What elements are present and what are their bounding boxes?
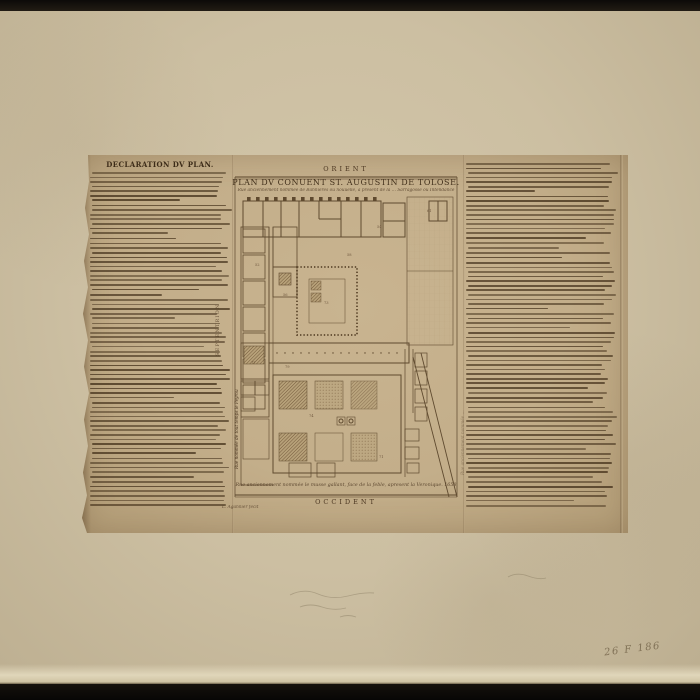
convent-floor-plan: 52 56 58 54 61 73 74 71 77 79 — [229, 167, 463, 523]
print-text-line — [466, 280, 615, 282]
print-text-line — [468, 303, 604, 305]
plan-figure-labels: 52 56 58 54 61 73 74 71 77 79 — [251, 209, 432, 459]
print-text-line — [466, 267, 612, 269]
print-text-line — [468, 411, 613, 413]
print-text-line — [466, 420, 612, 422]
orient-label: ORIENT — [229, 165, 463, 173]
print-text-line — [466, 481, 602, 483]
print-text-line — [468, 458, 610, 460]
plan-figure-label: 74 — [309, 414, 314, 418]
print-text-line — [466, 382, 605, 384]
print-text-line — [90, 365, 223, 367]
print-text-line — [90, 416, 225, 418]
print-text-line — [90, 486, 225, 488]
print-text-line — [90, 279, 222, 281]
print-text-line — [466, 364, 602, 366]
print-text-line — [466, 350, 607, 352]
plan-figure-label: 73 — [324, 301, 329, 305]
print-text-line — [466, 181, 612, 183]
print-text-line — [466, 397, 603, 399]
print-text-line — [468, 172, 618, 174]
print-text-line — [466, 177, 612, 179]
print-text-line — [466, 341, 611, 343]
print-text-line — [468, 332, 615, 334]
print-text-line — [466, 237, 586, 239]
print-text-line — [466, 232, 611, 234]
legend-text-block-right — [466, 163, 616, 507]
print-text-line — [466, 214, 614, 216]
photograph-of-mounted-engraving: DECLARATION DV PLAN. SEPTENTRION ORIENT … — [0, 0, 700, 700]
print-text-line — [466, 346, 603, 348]
engraved-print: DECLARATION DV PLAN. SEPTENTRION ORIENT … — [82, 155, 628, 533]
print-text-line — [466, 439, 605, 441]
print-text-line — [90, 332, 222, 334]
print-text-line — [466, 163, 610, 165]
print-text-line — [466, 223, 614, 225]
print-text-line — [92, 452, 196, 454]
print-text-line — [92, 317, 175, 319]
plan-figure-label: 71 — [379, 455, 384, 459]
street-label-left: Rue nommée de tout temps le Peyrou — [234, 389, 239, 469]
print-text-line — [468, 416, 617, 418]
print-text-line — [90, 299, 228, 301]
print-text-line — [90, 504, 226, 506]
print-text-line — [466, 360, 611, 362]
pencil-scribbles — [270, 563, 560, 623]
print-text-line — [90, 490, 224, 492]
print-text-line — [466, 205, 604, 207]
print-text-line — [466, 425, 608, 427]
print-text-line — [90, 434, 220, 436]
print-text-line — [90, 392, 222, 394]
print-text-line — [466, 453, 611, 455]
print-text-line — [466, 242, 604, 244]
print-text-line — [90, 411, 223, 413]
print-text-line — [468, 467, 609, 469]
print-text-line — [92, 186, 219, 188]
plan-figure-label: 54 — [377, 225, 382, 229]
print-text-line — [92, 429, 226, 431]
print-text-line — [92, 205, 226, 207]
print-text-line — [466, 289, 605, 291]
print-text-line — [466, 262, 610, 264]
print-text-line — [90, 177, 223, 179]
print-text-line — [466, 299, 612, 301]
print-text-line — [90, 247, 228, 249]
print-text-line — [90, 238, 176, 240]
print-text-line — [90, 195, 217, 197]
print-text-line — [90, 190, 218, 192]
print-text-line — [90, 243, 221, 245]
print-text-line — [90, 270, 222, 272]
print-text-line — [468, 318, 603, 320]
fold-crease — [620, 155, 623, 533]
plan-figure-label: 61 — [427, 209, 432, 213]
print-text-line — [90, 351, 220, 353]
print-text-line — [90, 476, 194, 478]
print-text-line — [90, 397, 174, 399]
legend-text-block-left — [90, 172, 230, 506]
print-text-line — [90, 341, 225, 343]
septentrion-label: SEPTENTRION — [215, 303, 221, 356]
print-text-line — [90, 336, 226, 338]
print-text-line — [92, 323, 220, 325]
plan-figure-label: 56 — [283, 293, 288, 297]
print-text-line — [90, 266, 216, 268]
print-text-line — [466, 387, 588, 389]
print-text-line — [466, 491, 605, 493]
print-text-line — [468, 355, 613, 357]
occident-label: OCCIDENT — [229, 498, 463, 506]
print-text-line — [468, 486, 613, 488]
print-text-line — [466, 228, 605, 230]
print-text-line — [90, 388, 221, 390]
print-text-line — [466, 322, 611, 324]
print-text-line — [90, 257, 227, 259]
print-text-line — [466, 448, 586, 450]
paper-seam-right — [463, 155, 465, 533]
print-text-line — [92, 223, 230, 225]
print-text-line — [90, 500, 224, 502]
print-text-line — [466, 209, 616, 211]
print-text-line — [466, 337, 614, 339]
print-text-line — [466, 500, 574, 502]
print-text-line — [92, 481, 223, 483]
print-text-line — [466, 471, 608, 473]
print-text-line — [466, 313, 614, 315]
print-text-line — [90, 284, 228, 286]
print-text-line — [92, 346, 204, 348]
plan-bottom-caption: Rue anciennement nommée le musse gallant… — [229, 483, 463, 488]
plan-figure-label: 58 — [347, 253, 352, 257]
plan-title: PLAN DV CONUENT ST. AUGUSTIN DE TOLOSE. — [229, 178, 463, 187]
photo-dark-border-top — [0, 0, 700, 11]
print-text-line — [90, 425, 218, 427]
print-text-line — [466, 443, 616, 445]
print-text-line — [92, 407, 225, 409]
print-text-line — [92, 209, 232, 211]
print-text-line — [466, 505, 606, 507]
print-text-line — [90, 374, 226, 376]
plan-sheet: ORIENT PLAN DV CONUENT ST. AUGUSTIN DE T… — [229, 167, 463, 523]
print-text-line — [468, 294, 616, 296]
print-text-line — [466, 308, 548, 310]
print-text-line — [90, 313, 217, 315]
print-text-line — [92, 232, 168, 234]
print-text-line — [90, 181, 222, 183]
print-text-line — [466, 327, 570, 329]
plan-figure-label: 79 — [285, 365, 290, 369]
print-text-line — [90, 495, 225, 497]
print-text-line — [90, 261, 228, 263]
print-text-line — [92, 252, 221, 254]
print-text-line — [466, 430, 606, 432]
legend-column-left: DECLARATION DV PLAN. — [90, 160, 230, 528]
print-text-line — [92, 199, 180, 201]
print-text-line — [92, 402, 220, 404]
print-text-line — [468, 247, 559, 249]
plan-figure-label: 77 — [251, 361, 256, 365]
print-text-line — [466, 168, 601, 170]
print-text-line — [92, 308, 230, 310]
print-text-line — [92, 458, 222, 460]
print-text-line — [466, 196, 608, 198]
print-text-line — [466, 434, 613, 436]
print-text-line — [468, 407, 605, 409]
print-text-line — [90, 218, 221, 220]
print-text-line — [466, 462, 612, 464]
legend-column-right — [466, 163, 616, 525]
print-text-line — [466, 219, 614, 221]
print-text-line — [92, 304, 219, 306]
print-text-line — [92, 448, 221, 450]
print-text-line — [90, 420, 229, 422]
print-text-line — [92, 471, 224, 473]
print-text-line — [466, 257, 562, 259]
print-text-line — [90, 462, 223, 464]
photo-dark-border-bottom — [0, 684, 700, 700]
print-text-line — [468, 392, 607, 394]
print-text-line — [90, 294, 162, 296]
print-text-line — [92, 289, 199, 291]
print-text-line — [90, 228, 222, 230]
print-text-line — [90, 355, 221, 357]
print-text-line — [468, 276, 603, 278]
print-text-line — [90, 275, 229, 277]
print-text-line — [90, 214, 221, 216]
print-text-line — [466, 373, 601, 375]
print-text-line — [90, 360, 222, 362]
print-text-line — [468, 285, 612, 287]
print-text-line — [466, 190, 535, 192]
print-text-line — [466, 252, 610, 254]
street-label-right: Rue anciennement nommée … — [460, 410, 465, 475]
print-text-line — [90, 439, 216, 441]
print-text-line — [468, 186, 609, 188]
mount-sheet-bottom-edge — [0, 664, 700, 684]
print-text-line — [468, 476, 593, 478]
print-text-line — [90, 369, 230, 371]
print-text-line — [90, 378, 230, 380]
print-text-line — [466, 401, 593, 403]
print-text-line — [92, 327, 219, 329]
print-text-line — [466, 378, 608, 380]
declaration-heading: DECLARATION DV PLAN. — [90, 160, 230, 169]
print-text-line — [466, 495, 607, 497]
print-text-line — [90, 383, 217, 385]
print-text-line — [92, 172, 226, 174]
print-text-line — [468, 271, 614, 273]
print-text-line — [466, 200, 609, 202]
print-text-line — [92, 443, 226, 445]
print-text-line — [90, 467, 229, 469]
engraver-signature: L. Agannier fecit — [222, 505, 259, 510]
plan-figure-label: 52 — [255, 263, 260, 267]
plan-subtitle: Rue anciennement nommée de Bannieres ou … — [229, 188, 463, 193]
print-text-line — [466, 369, 605, 371]
